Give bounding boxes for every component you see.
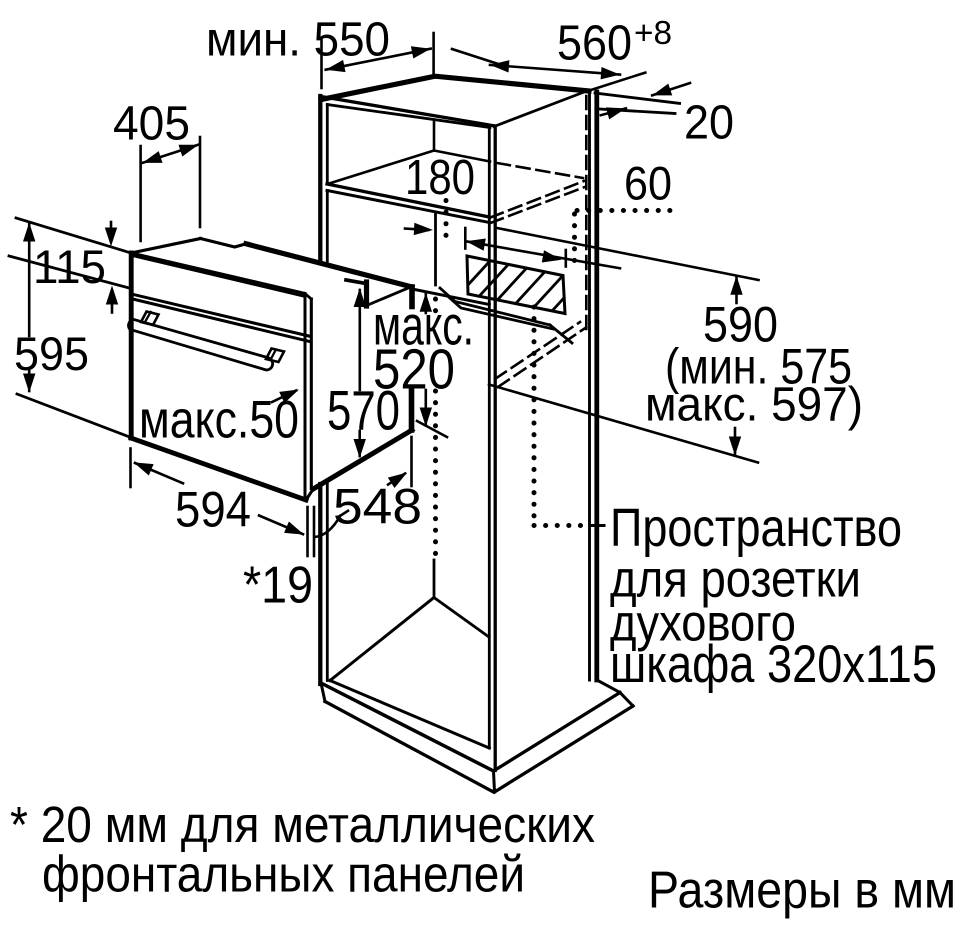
svg-text:595: 595 bbox=[14, 327, 89, 380]
svg-text:180: 180 bbox=[405, 151, 475, 205]
svg-text:560: 560 bbox=[557, 17, 632, 71]
svg-text:60: 60 bbox=[624, 157, 672, 210]
svg-text:мин. 550: мин. 550 bbox=[206, 14, 390, 67]
svg-text:Пространство: Пространство bbox=[610, 498, 902, 558]
svg-text:макс.50: макс.50 bbox=[139, 391, 299, 450]
svg-text:Размеры в мм: Размеры в мм bbox=[648, 862, 956, 920]
svg-text:20: 20 bbox=[684, 97, 734, 150]
svg-text:+8: +8 bbox=[634, 14, 672, 51]
svg-text:570: 570 bbox=[327, 379, 400, 442]
svg-text:* 20 мм для металлических: * 20 мм для металлических bbox=[10, 796, 595, 853]
svg-text:594: 594 bbox=[175, 482, 251, 538]
svg-text:*19: *19 bbox=[243, 557, 313, 615]
svg-text:115: 115 bbox=[33, 240, 106, 293]
svg-text:шкафа 320x115: шкафа 320x115 bbox=[610, 635, 937, 694]
svg-text:548: 548 bbox=[333, 479, 422, 535]
svg-text:макс. 597): макс. 597) bbox=[645, 379, 863, 432]
svg-text:405: 405 bbox=[113, 98, 190, 151]
svg-text:фронтальных панелей: фронтальных панелей bbox=[42, 846, 525, 903]
